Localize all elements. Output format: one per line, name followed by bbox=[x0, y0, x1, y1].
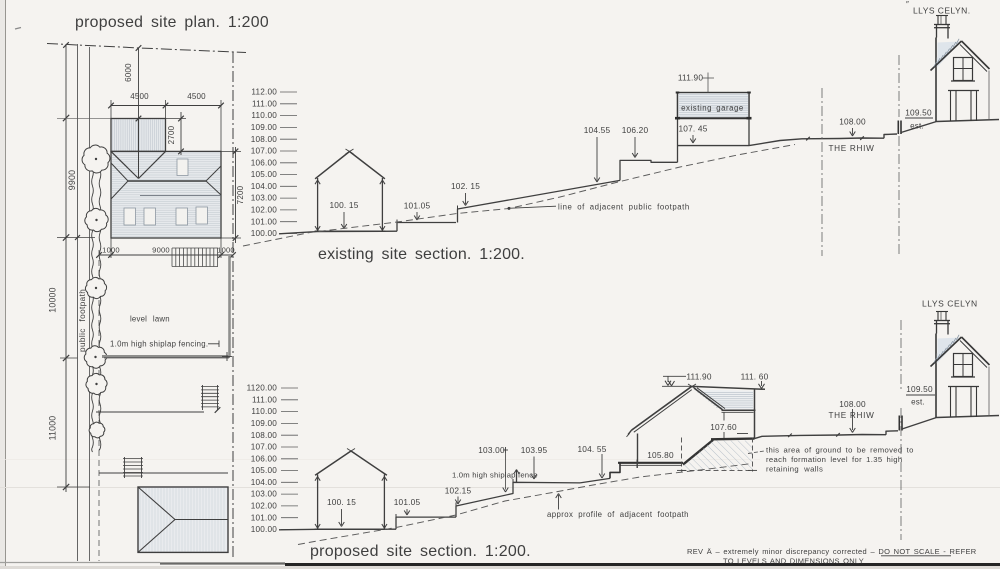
svg-text:proposed site plan. 1:200: proposed site plan. 1:200 bbox=[75, 14, 269, 31]
svg-text:111.00: 111.00 bbox=[252, 395, 277, 404]
svg-text:107. 45: 107. 45 bbox=[678, 124, 707, 134]
svg-text:LLYS CELYN: LLYS CELYN bbox=[922, 299, 978, 309]
svg-text:6000: 6000 bbox=[124, 63, 133, 82]
svg-text:est.: est. bbox=[911, 398, 925, 407]
svg-text:109.00: 109.00 bbox=[251, 419, 277, 428]
svg-text:102. 15: 102. 15 bbox=[451, 181, 480, 191]
svg-text:102.00: 102.00 bbox=[251, 206, 277, 215]
svg-text:this area of ground to be remo: this area of ground to be removed to bbox=[766, 446, 914, 455]
svg-text:108.00: 108.00 bbox=[251, 431, 277, 440]
svg-text:104.00: 104.00 bbox=[251, 478, 277, 487]
svg-text:104.00: 104.00 bbox=[251, 182, 277, 191]
svg-text:10000: 10000 bbox=[48, 287, 58, 312]
svg-text:103.00: 103.00 bbox=[251, 490, 277, 499]
svg-text:111.90: 111.90 bbox=[686, 372, 712, 382]
svg-text:106.20: 106.20 bbox=[622, 125, 649, 135]
svg-text:108.00: 108.00 bbox=[839, 117, 866, 127]
svg-text:107.60: 107.60 bbox=[710, 422, 737, 432]
svg-text:110.00: 110.00 bbox=[251, 111, 277, 120]
svg-text:107.00: 107.00 bbox=[251, 147, 277, 156]
svg-text:106.00: 106.00 bbox=[251, 158, 277, 167]
svg-text:109.00: 109.00 bbox=[251, 123, 277, 132]
svg-text:9900: 9900 bbox=[67, 170, 77, 190]
svg-text:106.00: 106.00 bbox=[251, 454, 277, 463]
svg-text:1000: 1000 bbox=[102, 246, 120, 255]
svg-text:existing site section. 1:200: existing site section. 1:200. bbox=[318, 246, 525, 263]
svg-text:107.00: 107.00 bbox=[251, 443, 277, 452]
svg-text:100. 15: 100. 15 bbox=[327, 497, 356, 507]
svg-text:line of adjacent public foot: line of adjacent public footpath bbox=[558, 202, 690, 211]
svg-text:LLYS CELYN.: LLYS CELYN. bbox=[913, 6, 971, 16]
svg-text:public footpath: public footpath bbox=[78, 289, 87, 352]
svg-text:existing garage: existing garage bbox=[681, 103, 744, 112]
svg-text:approx profile of adjacent f: approx profile of adjacent footpath bbox=[547, 510, 689, 519]
svg-text:THE RHIW: THE RHIW bbox=[828, 144, 874, 153]
svg-text:109.50: 109.50 bbox=[906, 384, 933, 394]
svg-text:1120.00: 1120.00 bbox=[247, 384, 278, 393]
svg-text:″: ″ bbox=[906, 0, 909, 9]
svg-text:104. 55: 104. 55 bbox=[577, 444, 606, 454]
svg-text:retaining walls: retaining walls bbox=[766, 465, 823, 474]
svg-text:100.00: 100.00 bbox=[251, 525, 277, 534]
svg-text:111. 60: 111. 60 bbox=[741, 372, 769, 382]
svg-text:102.00: 102.00 bbox=[251, 502, 277, 511]
svg-text:level lawn: level lawn bbox=[130, 315, 170, 324]
svg-text:1000: 1000 bbox=[217, 246, 235, 255]
svg-text:101.00: 101.00 bbox=[251, 513, 277, 522]
svg-text:100.00: 100.00 bbox=[251, 229, 277, 238]
svg-text:4500: 4500 bbox=[130, 92, 149, 101]
svg-text:4500: 4500 bbox=[187, 92, 206, 101]
svg-text:1.0m high shiplap fencing.: 1.0m high shiplap fencing. bbox=[110, 340, 208, 349]
svg-text:108.00: 108.00 bbox=[839, 399, 866, 409]
svg-text:2700: 2700 bbox=[167, 125, 176, 144]
svg-text:112.00: 112.00 bbox=[251, 88, 277, 97]
svg-text:est.: est. bbox=[910, 122, 924, 131]
svg-text:110.00: 110.00 bbox=[251, 407, 277, 416]
svg-text:11000: 11000 bbox=[48, 416, 58, 441]
svg-text:proposed site section. 1:200: proposed site section. 1:200. bbox=[310, 543, 531, 560]
svg-text:105.00: 105.00 bbox=[251, 466, 277, 475]
svg-text:109.50: 109.50 bbox=[905, 108, 932, 118]
svg-text:7200: 7200 bbox=[236, 185, 245, 204]
svg-text:105.00: 105.00 bbox=[251, 170, 277, 179]
svg-text:100. 15: 100. 15 bbox=[329, 200, 358, 210]
svg-text:101.05: 101.05 bbox=[394, 497, 421, 507]
svg-text:THE RHIW: THE RHIW bbox=[828, 411, 874, 420]
svg-text:103.95: 103.95 bbox=[521, 445, 548, 455]
svg-text:102.15: 102.15 bbox=[445, 486, 472, 496]
svg-text:103.00: 103.00 bbox=[251, 194, 277, 203]
svg-text:101.00: 101.00 bbox=[251, 217, 277, 226]
svg-text:REV Ä – extremely minor discre: REV Ä – extremely minor discrepancy corr… bbox=[687, 547, 977, 556]
svg-text:reach formation level for 1: reach formation level for 1.35 high bbox=[766, 455, 902, 464]
svg-text:108.00: 108.00 bbox=[251, 135, 277, 144]
svg-text:111.90: 111.90 bbox=[678, 73, 704, 83]
svg-text:105.80: 105.80 bbox=[647, 450, 674, 460]
svg-text:111.00: 111.00 bbox=[252, 99, 277, 108]
svg-text:9000: 9000 bbox=[152, 246, 170, 255]
svg-text:1.0m high shiplap fence: 1.0m high shiplap fence bbox=[452, 471, 538, 480]
svg-text:104.55: 104.55 bbox=[584, 125, 611, 135]
svg-text:TO LEVELS AND DIMENSIONS ONLY: TO LEVELS AND DIMENSIONS ONLY bbox=[723, 557, 864, 566]
svg-text:103.00: 103.00 bbox=[478, 445, 505, 455]
svg-text:101.05: 101.05 bbox=[404, 201, 431, 211]
